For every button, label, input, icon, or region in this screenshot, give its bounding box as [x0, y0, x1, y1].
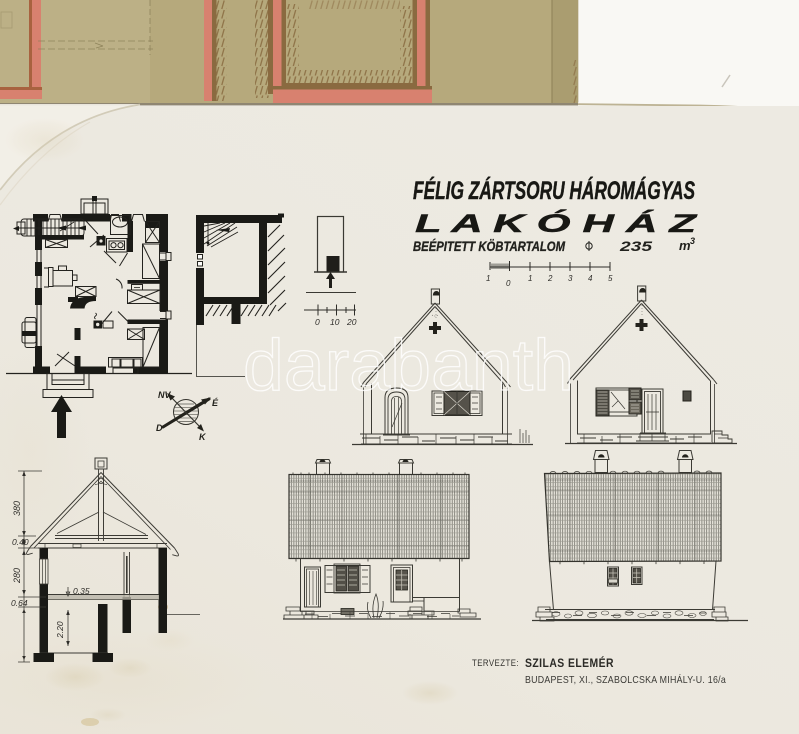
svg-text:5: 5: [608, 274, 613, 283]
svg-text:0: 0: [506, 279, 511, 288]
svg-text:L A K Ó H Á Z: L A K Ó H Á Z: [415, 209, 699, 238]
svg-text:380: 380: [12, 501, 22, 516]
svg-text:D: D: [156, 423, 163, 433]
svg-text:2: 2: [547, 274, 553, 283]
svg-text:0.35: 0.35: [73, 586, 90, 596]
svg-text:0.64: 0.64: [11, 598, 28, 608]
svg-text:NV: NV: [158, 390, 171, 400]
svg-text:0.40: 0.40: [12, 537, 29, 547]
svg-text:1: 1: [528, 274, 532, 283]
svg-text:É: É: [212, 398, 219, 408]
svg-text:2.20: 2.20: [55, 621, 65, 639]
svg-text:3: 3: [568, 274, 573, 283]
svg-text:FÉLIG ZÁRTSORU HÁROMÁGYAS: FÉLIG ZÁRTSORU HÁROMÁGYAS: [413, 176, 695, 205]
svg-text:4: 4: [588, 274, 593, 283]
svg-text:280: 280: [12, 568, 22, 584]
svg-text:TERVEZTE:: TERVEZTE:: [472, 658, 519, 668]
svg-text:BEÉPITETT KÖBTARTALOM: BEÉPITETT KÖBTARTALOM: [413, 239, 566, 254]
svg-text:3: 3: [690, 236, 695, 246]
svg-text:235: 235: [619, 238, 653, 254]
svg-text:BUDAPEST, XI., SZABOLCSKA MIHÁ: BUDAPEST, XI., SZABOLCSKA MIHÁLY-U. 16/a: [525, 673, 726, 686]
svg-text:1: 1: [486, 274, 490, 283]
svg-text:SZILAS ELEMÉR: SZILAS ELEMÉR: [525, 657, 614, 670]
svg-text:darabanth: darabanth: [243, 326, 574, 406]
